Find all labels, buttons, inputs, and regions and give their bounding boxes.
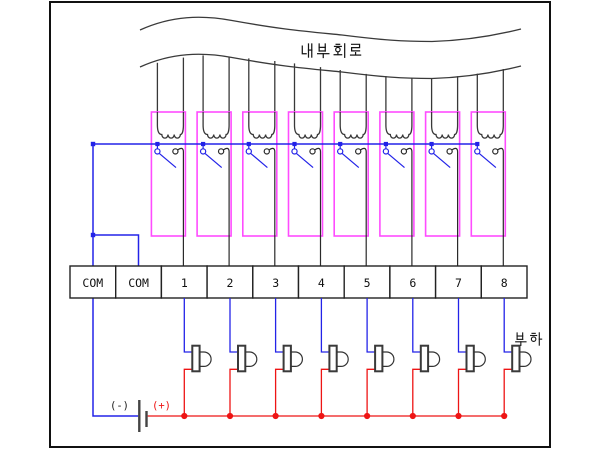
load-bell-8: [501, 298, 531, 419]
load-bell-2: [227, 298, 257, 419]
load-label: 부하: [515, 333, 542, 348]
terminal-cell-1: 1: [161, 266, 207, 298]
battery-negative-label: (-): [110, 400, 129, 412]
coil-lead-wires: [157, 55, 503, 112]
relay-row: [151, 112, 505, 266]
battery-negative-wire: [93, 298, 138, 416]
terminal-cell-6: 6: [390, 266, 436, 298]
load-bell-7: [455, 298, 485, 419]
relay-2: [197, 112, 231, 266]
terminal-label: 6: [409, 276, 416, 290]
terminal-label: 2: [227, 276, 234, 290]
terminal-cell-4: 4: [299, 266, 345, 298]
terminal-cell-8: 8: [481, 266, 527, 298]
terminal-label: 7: [455, 276, 462, 290]
drawing-frame: [50, 2, 550, 447]
junction-dot: [91, 233, 95, 237]
terminal-label: COM: [82, 276, 103, 290]
relay-5: [334, 112, 368, 266]
internal-circuit-region: 내부회로: [140, 17, 521, 78]
load-row: [181, 298, 531, 419]
terminal-label: 1: [181, 276, 188, 290]
com2-branch-wire: [93, 235, 139, 266]
relay-6: [380, 112, 414, 266]
terminal-label: COM: [128, 276, 149, 290]
load-bell-4: [318, 298, 348, 419]
junction-dot: [91, 142, 95, 146]
terminal-cell-3: 3: [253, 266, 299, 298]
battery-positive-label: (+): [152, 400, 171, 412]
relay-4: [289, 112, 323, 266]
relay-output-wiring-diagram: 내부회로 COMCOM12345678 (-) (+) 부하: [0, 0, 600, 450]
load-bell-1: [181, 298, 211, 419]
terminal-cell-5: 5: [344, 266, 390, 298]
terminal-cell-2: 2: [207, 266, 253, 298]
terminal-label: 4: [318, 276, 325, 290]
relay-8: [471, 112, 505, 266]
terminal-cell-COM-2: COM: [116, 266, 162, 298]
terminal-cell-COM-1: COM: [70, 266, 116, 298]
load-bell-5: [364, 298, 394, 419]
terminal-label: 5: [364, 276, 371, 290]
torn-edge-top: [140, 17, 521, 41]
terminal-cell-7: 7: [436, 266, 482, 298]
relay-7: [426, 112, 460, 266]
terminal-label: 8: [501, 276, 508, 290]
internal-circuit-label: 내부회로: [301, 44, 361, 60]
relay-3: [243, 112, 277, 266]
relay-1: [151, 112, 185, 266]
load-bell-3: [273, 298, 303, 419]
load-bell-6: [410, 298, 440, 419]
wiring-diagram-page: 내부회로 COMCOM12345678 (-) (+) 부하: [0, 0, 600, 450]
terminal-block: COMCOM12345678: [70, 266, 527, 298]
terminal-label: 3: [272, 276, 279, 290]
